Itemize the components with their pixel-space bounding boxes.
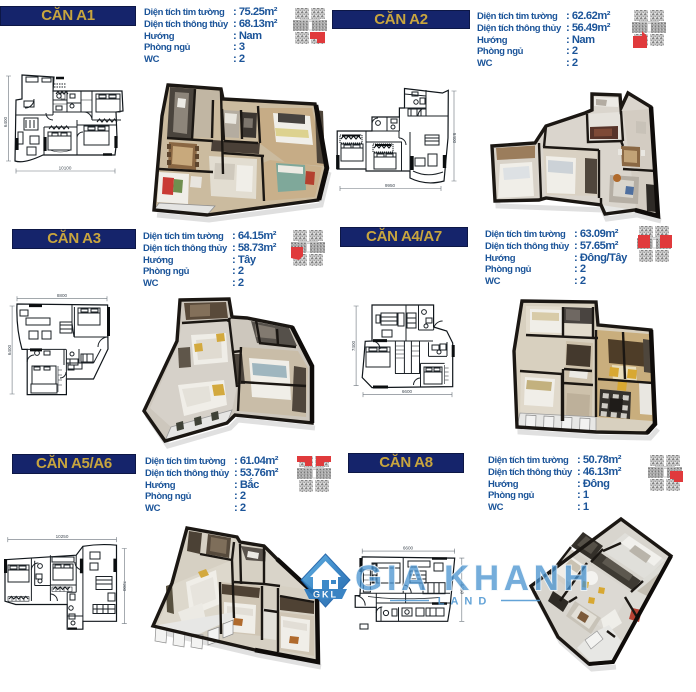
- svg-text:8800: 8800: [57, 293, 68, 298]
- svg-text:6400: 6400: [7, 344, 12, 355]
- svg-text:LAND: LAND: [438, 596, 493, 608]
- svg-text:10250: 10250: [56, 534, 69, 539]
- svg-text:7400: 7400: [351, 340, 356, 351]
- svg-text:9950: 9950: [385, 183, 396, 188]
- svg-text:6400: 6400: [4, 116, 8, 127]
- svg-text:GIA KHANH: GIA KHANH: [355, 559, 593, 598]
- svg-text:GKL: GKL: [313, 590, 338, 600]
- svg-text:10100: 10100: [59, 166, 72, 171]
- svg-text:6600: 6600: [403, 546, 414, 551]
- svg-text:7200: 7200: [122, 581, 127, 592]
- svg-text:8400: 8400: [452, 133, 457, 144]
- svg-text:6600: 6600: [402, 389, 413, 394]
